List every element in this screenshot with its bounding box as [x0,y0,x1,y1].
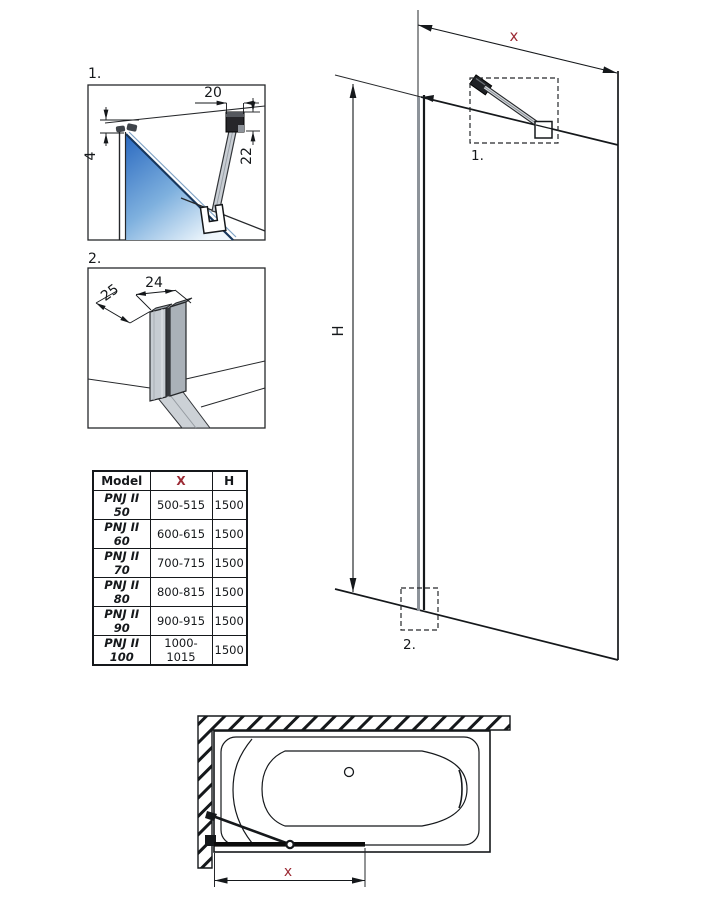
technical-drawing-page: 1. 4 20 [0,0,703,898]
dim-label-24: 24 [145,275,163,291]
model-name: PNJ II 100 [93,636,150,666]
table-row: PNJ II 50 500-515 1500 [93,491,247,520]
detail-2-number: 2. [88,251,101,267]
dim-label-4: 4 [83,151,99,160]
width-dim-label: x [284,864,292,880]
glass-slot [166,307,170,397]
elevation-drawing: x H 1. 2. [330,5,703,695]
model-name: PNJ II 90 [93,607,150,636]
dim-extension [335,75,421,97]
back-profile [170,302,186,396]
detail-1-number: 1. [88,66,101,82]
callout-label-1: 1. [471,148,484,164]
bathtub-outline [214,731,490,852]
x-range: 700-715 [150,549,212,578]
detail-2-drawing: 2. 24 25 [83,245,273,435]
h-value: 1500 [212,549,247,578]
dim-label-22: 22 [239,147,255,165]
plan-view-drawing: x [190,705,530,895]
size-table: Model X H PNJ II 50 500-515 1500 PNJ II … [92,470,248,666]
h-value: 1500 [212,491,247,520]
header-h: H [212,471,247,491]
dim-label-20: 20 [204,85,222,101]
width-dim-label: x [510,27,519,45]
model-name: PNJ II 80 [93,578,150,607]
x-range: 600-615 [150,520,212,549]
h-value: 1500 [212,520,247,549]
table-row: PNJ II 80 800-815 1500 [93,578,247,607]
model-name: PNJ II 60 [93,520,150,549]
arm-bracket-top [226,112,244,117]
x-range: 800-815 [150,578,212,607]
callout-label-2: 2. [403,637,416,653]
model-name: PNJ II 50 [93,491,150,520]
x-range: 500-515 [150,491,212,520]
table-row: PNJ II 90 900-915 1500 [93,607,247,636]
glass-clamp [535,122,552,139]
table-row: PNJ II 100 1000-1015 1500 [93,636,247,666]
panel-bottom-edge [335,589,618,660]
height-dim-label: H [330,325,347,336]
header-model: Model [93,471,150,491]
model-name: PNJ II 70 [93,549,150,578]
arm-bracket-notch [238,125,244,132]
arm-knob [286,841,293,848]
header-x: X [150,471,212,491]
table-row: PNJ II 60 600-615 1500 [93,520,247,549]
table-row: PNJ II 70 700-715 1500 [93,549,247,578]
front-profile [150,308,166,401]
h-value: 1500 [212,578,247,607]
h-value: 1500 [212,607,247,636]
h-value: 1500 [212,636,247,666]
table-header-row: Model X H [93,471,247,491]
x-range: 900-915 [150,607,212,636]
panel-top-edge [421,97,618,145]
x-range: 1000-1015 [150,636,212,666]
detail-1-drawing: 1. 4 20 [83,60,273,245]
drain [345,768,354,777]
